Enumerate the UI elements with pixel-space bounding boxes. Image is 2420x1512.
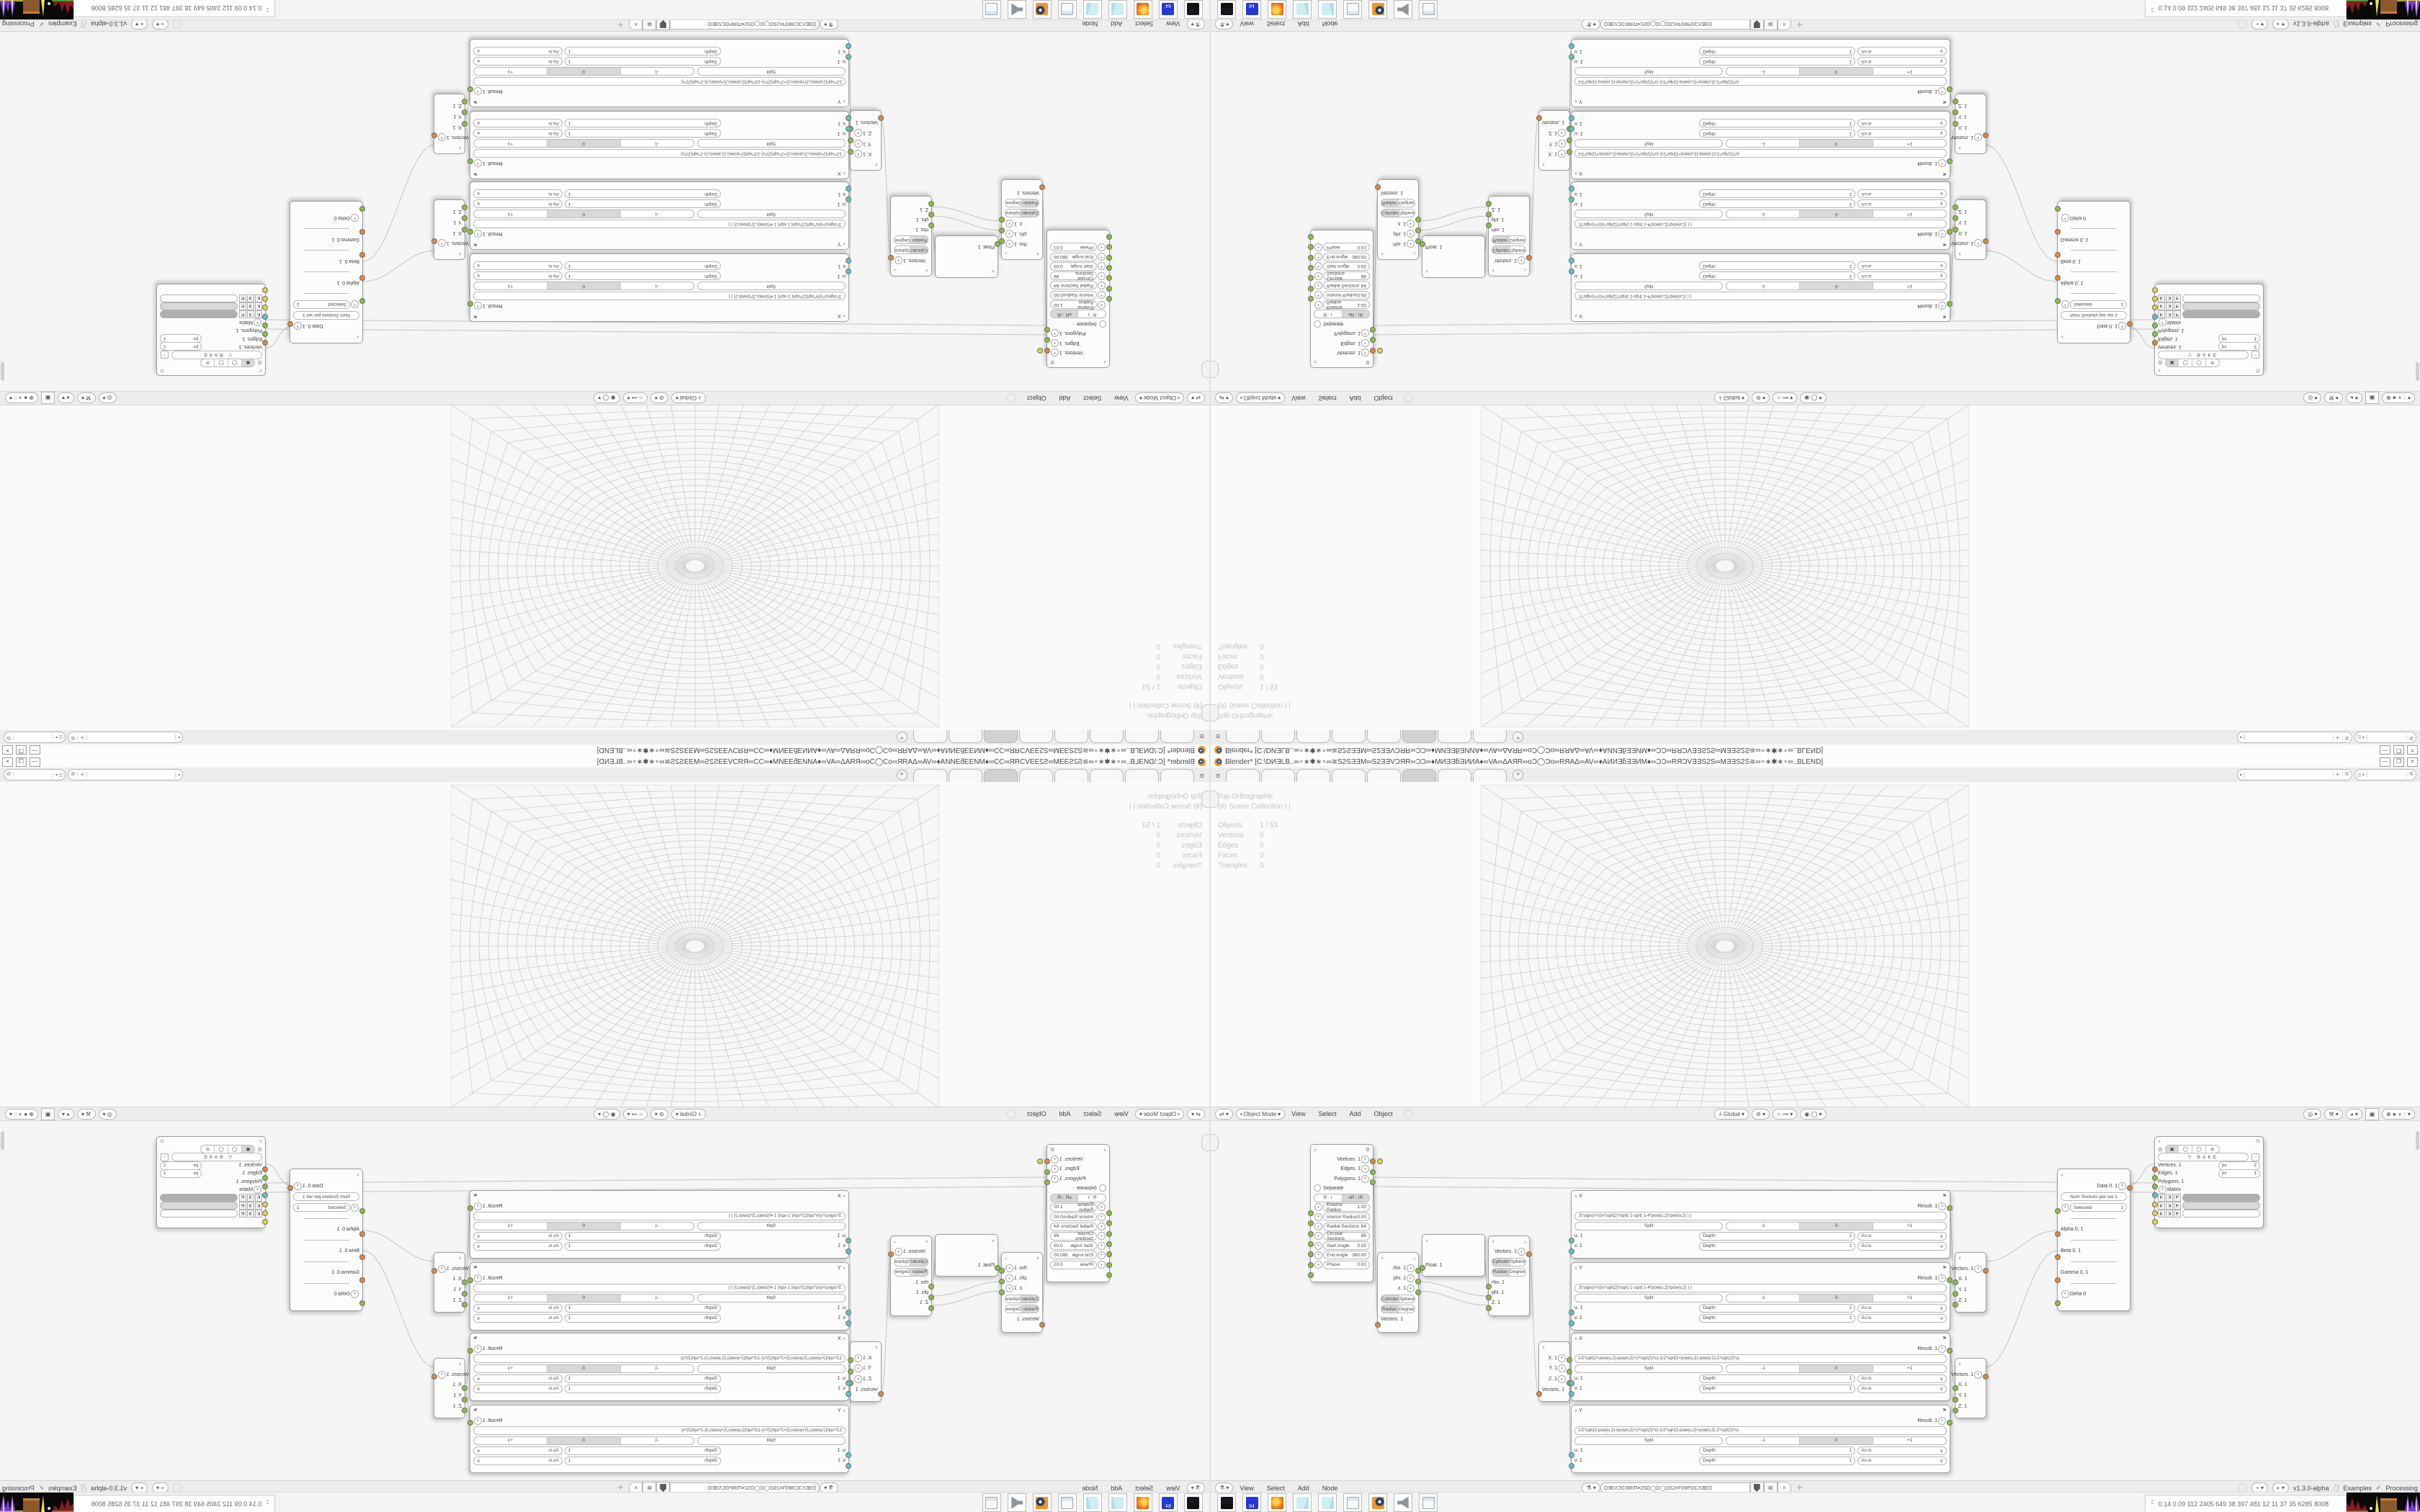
pivot-dropdown[interactable]: ⊘ ▾ [650, 1109, 668, 1120]
viewlayer-name-field[interactable] [2367, 770, 2406, 779]
segment-Sphere[interactable]: Sphere [1510, 246, 1525, 253]
cyan-socket[interactable] [1569, 1463, 1574, 1469]
green-socket[interactable] [1953, 1302, 1958, 1308]
gizmo-toggle[interactable]: ◎ ▾ [2303, 1109, 2321, 1120]
cyan-socket[interactable] [1569, 1320, 1574, 1326]
segment-Radian[interactable]: Radian [911, 1269, 928, 1276]
3d-viewport[interactable]: Top Orthographic (8) Scene Collection | … [1211, 392, 2420, 730]
gizmo-toggle[interactable]: ◎ ▾ [99, 393, 117, 404]
green-socket[interactable] [999, 1290, 1005, 1295]
tree-name-field[interactable]: OƎEΛƆCЯRIΠ¤2SO◯O◯OS2¤ΠIЯPOCΛƎEO [670, 19, 820, 30]
green-socket[interactable] [1947, 158, 1953, 164]
scene-selector[interactable]: ▾ ✛ ⧉ [68, 769, 183, 780]
green-socket[interactable] [2055, 1300, 2061, 1306]
green-socket[interactable] [1420, 1265, 1425, 1271]
segment-Cylinder[interactable]: Cylinder [1492, 1259, 1510, 1266]
green-socket[interactable] [1106, 286, 1112, 292]
node-menu-view[interactable]: View [1240, 21, 1253, 28]
node-formula-x1[interactable]: ∨X⚑Result. 1▾.5*sign(u^v)/v*sqrt(2)*sqrt… [470, 253, 849, 322]
node-list-join[interactable]: ∨Data 0. 1▾Num Sockets per set 1▾Selecte… [2057, 201, 2130, 343]
orange-socket[interactable] [2127, 321, 2133, 327]
title-bar[interactable]: Blender* [C:\DИƎLB..∞∘∗✱∗∘∞≅S2SƎƎM∞S2ƎƎV… [1211, 744, 2420, 756]
orange-socket[interactable] [359, 252, 365, 258]
workspace-tab-7[interactable] [949, 769, 982, 782]
node-viewer-draw[interactable]: ∨⊙⊙▣◯◯⊘▽ BAKE⌂Vertices. 1px2Edges. 1px1P… [156, 1136, 266, 1228]
viewlayer-selector[interactable]: ◫ ▾ ⧉ [4, 769, 66, 780]
taskbar-icon-notepad[interactable] [1318, 1493, 1337, 1512]
taskbar-icon-app-window[interactable] [1058, 1493, 1077, 1512]
copy-scene-icon[interactable]: ⧉ [68, 772, 78, 778]
menu-hamburger-icon[interactable]: ≡ [1216, 772, 1220, 780]
green-socket[interactable] [1308, 1210, 1314, 1216]
processing-check-icon[interactable]: ✓ [2376, 1484, 2382, 1492]
cyan-socket[interactable] [1569, 1238, 1574, 1243]
snap-dropdown[interactable]: ∩ ⊶ ▾ [623, 1109, 647, 1120]
maximize-button[interactable]: ❐ [16, 757, 27, 767]
taskbar-icon-drive[interactable] [1217, 1493, 1236, 1512]
node-formula-x2[interactable]: ∨X⚑Result. 1▾1/2*sqrt(2+pow(u,2)-pow(v,2… [470, 111, 849, 179]
close-button[interactable]: × [2, 746, 13, 755]
workspace-tab-6[interactable] [984, 730, 1018, 743]
cyan-socket[interactable] [846, 1380, 851, 1386]
workspace-tab-7[interactable] [1438, 730, 1471, 743]
cyan-socket[interactable] [1569, 186, 1574, 192]
render-preview-button[interactable]: ▣ [2365, 392, 2379, 405]
green-socket[interactable] [1947, 86, 1953, 92]
workspace-tab-2[interactable] [1125, 730, 1159, 743]
node-vector-in-1[interactable]: ∨Vectors. 1▾X. 1Y. 1Z. 1 [434, 199, 465, 260]
green-socket[interactable] [462, 204, 467, 210]
green-socket[interactable] [848, 138, 853, 143]
taskbar-icon-notepad[interactable] [1083, 1493, 1102, 1512]
scene-icon[interactable]: ▾ [175, 773, 182, 778]
taskbar-icon-drive[interactable] [1184, 1493, 1203, 1512]
green-socket[interactable] [1308, 255, 1314, 261]
close-button[interactable]: × [2, 757, 13, 767]
3d-viewport[interactable]: Top Orthographic (8) Scene Collection | … [0, 392, 1209, 730]
taskbar-icon-app-window[interactable] [982, 1493, 1001, 1512]
taskbar-icon-notepad[interactable] [1108, 0, 1127, 19]
green-socket[interactable] [467, 229, 473, 235]
node-polar-in[interactable]: ∨⟓Vectors. 1▾CylinderSphereRadianDegreer… [890, 196, 932, 276]
menu-hamburger-icon[interactable]: ≡ [1216, 732, 1220, 740]
orange-socket[interactable] [1375, 1322, 1381, 1328]
processing-toggle[interactable]: Processing [2385, 1485, 2418, 1492]
tree-browse-button[interactable]: ⚗ ▾ [1582, 19, 1600, 30]
pivot-dropdown[interactable]: ⊘ ▾ [1752, 393, 1770, 404]
viewport-menu-select[interactable]: Select [1083, 395, 1101, 402]
orange-socket[interactable] [431, 132, 437, 138]
green-socket[interactable] [2152, 331, 2158, 337]
cyan-socket[interactable] [846, 1463, 851, 1469]
cyan-socket[interactable] [1569, 197, 1574, 202]
maximize-button[interactable]: ❐ [2393, 746, 2404, 755]
shading-mode-pills[interactable]: ⊕ ● ◑ ◌ ▾ [5, 1109, 38, 1120]
copy-viewlayer-icon[interactable]: ⧉ [2406, 734, 2416, 740]
scene-name-field[interactable] [87, 733, 175, 742]
workspace-tab-5[interactable] [1019, 730, 1053, 743]
orange-socket[interactable] [359, 1277, 365, 1283]
segment-Sphere[interactable]: Sphere [1005, 1295, 1021, 1302]
node-menu-node[interactable]: Node [1083, 1485, 1098, 1492]
taskbar-icon-blender[interactable] [1033, 0, 1052, 19]
cyan-socket[interactable] [1569, 1248, 1574, 1254]
node-vector-in-2[interactable]: ∨Vectors. 1▾X. 1Y. 1Z. 1 [434, 94, 465, 154]
green-socket[interactable] [1486, 201, 1492, 207]
viewlayer-selector[interactable]: ◫ ▾ ⧉ [2354, 732, 2416, 743]
node-menu-node[interactable]: Node [1322, 1485, 1338, 1492]
taskbar-icon-notepad[interactable] [1293, 0, 1312, 19]
green-socket[interactable] [1308, 234, 1314, 240]
orange-socket[interactable] [2055, 229, 2061, 235]
green-socket[interactable] [1953, 109, 1958, 115]
node-editor-type-button[interactable]: ⚗ ▾ [1215, 19, 1233, 30]
segment-Sphere[interactable]: Sphere [1399, 1295, 1415, 1302]
node-list-join[interactable]: ∨Data 0. 1▾Num Sockets per set 1▾Selecte… [290, 201, 363, 343]
orange-socket[interactable] [287, 1185, 293, 1191]
viewlayer-icon[interactable]: ◫ ▾ [53, 735, 65, 740]
snap-dropdown[interactable]: ∩ ⊶ ▾ [1773, 393, 1797, 404]
taskbar-icon-firefox[interactable] [1268, 1493, 1286, 1512]
viewport-menu-object[interactable]: Object [1374, 1110, 1393, 1117]
green-socket[interactable] [1370, 1169, 1376, 1175]
workspace-tab-6[interactable] [984, 769, 1018, 782]
pin-scene-icon[interactable]: ✛ [2333, 734, 2342, 740]
taskbar-icon-app-window[interactable] [1419, 1493, 1438, 1512]
scene-icon[interactable]: ▾ [2238, 735, 2245, 740]
green-socket[interactable] [462, 99, 467, 104]
bake-button[interactable]: ▽ BAKE [2158, 1153, 2249, 1161]
workspace-tab-8[interactable] [1473, 730, 1507, 743]
node-formula-x1[interactable]: ∨X⚑Result. 1▾.5*sign(u^v)/v*sqrt(2)*sqrt… [470, 1190, 849, 1259]
toolbar-collapse-tab[interactable] [1201, 791, 1209, 808]
green-socket[interactable] [1953, 1291, 1958, 1297]
node-vector-out[interactable]: ∨X. 1▾Y. 1▾Z. 1▾Vectors. 1 [850, 1341, 882, 1402]
taskbar-icon-notepad[interactable] [1293, 1493, 1312, 1512]
workspace-tab-4[interactable] [1054, 730, 1088, 743]
examples-menu[interactable]: Examples [2343, 21, 2372, 28]
taskbar-icon-notepad[interactable] [1318, 0, 1337, 19]
proportional-edit-dropdown[interactable]: ◉ ◯ ▾ [593, 1109, 619, 1120]
node-menu-add[interactable]: Add [1111, 21, 1122, 28]
orange-socket[interactable] [359, 275, 365, 281]
node-menu-view[interactable]: View [1240, 1485, 1253, 1492]
partial-update-dropdown[interactable]: ◐ ▾ [131, 19, 148, 30]
green-socket[interactable] [2055, 206, 2061, 212]
green-socket[interactable] [1953, 204, 1958, 210]
green-socket[interactable] [1308, 1272, 1314, 1278]
segment-Degree[interactable]: Degree [1399, 1305, 1415, 1313]
active-tool-indicator[interactable] [1007, 394, 1016, 403]
green-socket[interactable] [848, 1369, 853, 1374]
segment-eR : iR[interactable]: eR : iR [1051, 310, 1078, 318]
taskbar-icon-firefox[interactable] [1268, 0, 1286, 19]
green-socket[interactable] [2152, 1184, 2158, 1189]
workspace-tab-3[interactable] [1090, 730, 1124, 743]
orange-socket[interactable] [1375, 184, 1381, 190]
3d-viewport[interactable]: Top Orthographic (8) Scene Collection | … [1211, 782, 2420, 1120]
node-polar-in[interactable]: ∨⟓Vectors. 1▾CylinderSphereRadianDegreer… [1488, 196, 1530, 276]
active-tool-indicator[interactable] [1404, 1110, 1413, 1119]
green-socket[interactable] [2152, 1175, 2158, 1181]
node-menu-add[interactable]: Add [1111, 1485, 1122, 1492]
cyan-socket[interactable] [846, 1320, 851, 1326]
orientation-dropdown[interactable]: ⟂ Global ▾ [671, 393, 706, 404]
workspace-tab-3[interactable] [1296, 730, 1330, 743]
proportional-edit-dropdown[interactable]: ◉ ◯ ▾ [1800, 1109, 1826, 1120]
node-polar-out[interactable]: ∨⟓rho. 1▾phi. 1▾z. 1▾CylinderSphereRadia… [1001, 179, 1043, 260]
workspace-tab-5[interactable] [1019, 769, 1053, 782]
overlays-toggle[interactable]: ⚒ ▾ [2324, 393, 2342, 404]
green-socket[interactable] [1106, 1262, 1112, 1268]
title-bar[interactable]: Blender* [C:\DИƎLB..∞∘∗✱∗∘∞≅S2SƎƎM∞S2ƎƎV… [0, 756, 1209, 768]
node-vector-in-1[interactable]: ∨Vectors. 1▾X. 1Y. 1Z. 1 [1955, 1252, 1986, 1313]
processing-check-icon[interactable]: ✓ [39, 1484, 45, 1492]
segment-Degree[interactable]: Degree [895, 236, 911, 243]
pin-icon[interactable]: ✛ [618, 20, 624, 28]
green-socket[interactable] [1415, 1279, 1421, 1284]
segment-Radian[interactable]: Radian [1381, 199, 1399, 207]
minimize-button[interactable]: — [30, 746, 40, 755]
taskbar-icon-speaker[interactable] [1394, 0, 1412, 19]
copy-viewlayer-icon[interactable]: ⧉ [4, 772, 14, 778]
green-socket[interactable] [1044, 327, 1050, 333]
cyan-socket[interactable] [1569, 115, 1574, 121]
workspace-tab-2[interactable] [1261, 769, 1295, 782]
green-socket[interactable] [1106, 296, 1112, 302]
green-socket[interactable] [467, 158, 473, 164]
green-socket[interactable] [1953, 1408, 1958, 1413]
segment-Degree[interactable]: Degree [1005, 1305, 1022, 1313]
node-menu-node[interactable]: Node [1322, 21, 1338, 28]
orientation-dropdown[interactable]: ⟂ Global ▾ [1714, 1109, 1749, 1120]
segment-Radian[interactable]: Radian [911, 236, 928, 243]
green-socket[interactable] [1486, 222, 1492, 228]
orange-socket[interactable] [2055, 1254, 2061, 1260]
add-workspace-button[interactable]: + [897, 770, 907, 780]
orange-socket[interactable] [1536, 115, 1542, 121]
green-socket[interactable] [1370, 1179, 1376, 1185]
render-preview-button[interactable]: ▣ [2365, 1108, 2379, 1120]
shading-mode-pills[interactable]: ⊕ ● ◑ ◌ ▾ [5, 393, 38, 404]
workspace-tab-7[interactable] [1438, 769, 1471, 782]
maximize-button[interactable]: ❐ [16, 746, 27, 755]
taskbar-icon-blender[interactable] [1368, 0, 1387, 19]
node-formula-y1[interactable]: ∨Y⚑Result. 1▾.5*sign(u^v)/u*sqrt(2)*sqrt… [1571, 1262, 1950, 1331]
green-socket[interactable] [848, 149, 853, 155]
processing-toggle[interactable]: Processing [2, 21, 35, 28]
workspace-tab-4[interactable] [1332, 730, 1366, 743]
viewlayer-icon[interactable]: ◫ ▾ [2355, 735, 2367, 740]
workspace-tab-1[interactable] [1160, 730, 1194, 743]
cyan-socket[interactable] [2152, 1192, 2158, 1198]
orange-socket[interactable] [2055, 1231, 2061, 1237]
mode-dropdown[interactable]: ▪ Object Mode ▾ [1236, 393, 1285, 404]
green-socket[interactable] [1308, 1220, 1314, 1226]
segment-Cylinder[interactable]: Cylinder [1381, 1295, 1399, 1302]
orange-socket[interactable] [2127, 1185, 2133, 1191]
node-editor-type-button[interactable]: ⚗ ▾ [1187, 19, 1205, 30]
green-socket[interactable] [1486, 1295, 1492, 1300]
snap-dropdown[interactable]: ∩ ⊶ ▾ [623, 393, 647, 404]
green-socket[interactable] [1953, 99, 1958, 104]
node-torus[interactable]: ∨⚙Vertices. 1▾Edges. 1▾Polygons. 1▾Separ… [1047, 1144, 1110, 1282]
scene-icon[interactable]: ▾ [175, 735, 182, 740]
workspace-tab-8[interactable] [1473, 769, 1507, 782]
segment-eR : iR[interactable]: eR : iR [1343, 1194, 1370, 1202]
overlays-toggle[interactable]: ⚒ ▾ [2324, 1109, 2342, 1120]
menu-hamburger-icon[interactable]: ≡ [1200, 772, 1204, 780]
workspace-tab-2[interactable] [1261, 730, 1295, 743]
green-socket[interactable] [1308, 244, 1314, 250]
node-viewer-draw[interactable]: ∨⊙⊙▣◯◯⊘▽ BAKE⌂Vertices. 1px2Edges. 1px1P… [2154, 1136, 2264, 1228]
cyan-socket[interactable] [2152, 314, 2158, 320]
viewport-menu-object[interactable]: Object [1027, 1110, 1046, 1117]
node-vector-out[interactable]: ∨X. 1▾Y. 1▾Z. 1▾Vectors. 1 [1538, 1341, 1570, 1402]
green-socket[interactable] [2055, 1208, 2061, 1214]
cyan-socket[interactable] [1569, 1452, 1574, 1458]
node-vector-in-2[interactable]: ∨Vectors. 1▾X. 1Y. 1Z. 1 [1955, 94, 1986, 154]
workspace-tab-4[interactable] [1054, 769, 1088, 782]
orientation-dropdown[interactable]: ⟂ Global ▾ [1714, 393, 1749, 404]
green-socket[interactable] [1415, 217, 1421, 222]
draft-mode-dropdown[interactable]: ⌁ ▾ [152, 19, 169, 30]
green-socket[interactable] [928, 222, 934, 228]
viewport-menu-view[interactable]: View [1291, 1110, 1305, 1117]
green-socket[interactable] [462, 227, 467, 233]
node-menu-select[interactable]: Select [1135, 21, 1153, 28]
title-bar[interactable]: Blender* [C:\DИƎLB..∞∘∗✱∗∘∞≅S2SƎƎM∞S2ƎƎV… [1211, 756, 2420, 768]
segment-R : r[interactable]: R : r [1314, 310, 1343, 318]
green-socket[interactable] [1486, 212, 1492, 217]
viewlayer-icon[interactable]: ◫ ▾ [2355, 773, 2367, 778]
xray-toggle[interactable]: ◕ ▾ [58, 393, 74, 404]
scene-name-field[interactable] [2245, 770, 2333, 779]
green-socket[interactable] [1308, 296, 1314, 302]
segment-Radian[interactable]: Radian [1492, 236, 1510, 243]
chevrons-icon[interactable]: ⌃⌃ [265, 6, 270, 12]
copy-viewlayer-icon[interactable]: ⧉ [4, 734, 14, 740]
taskbar-icon-app-window[interactable] [1343, 0, 1362, 19]
green-socket[interactable] [359, 1208, 365, 1214]
sverchok-node-editor[interactable]: ∨⚙Vertices. 1▾Edges. 1▾Polygons. 1▾Separ… [0, 1120, 1209, 1481]
processing-check-icon[interactable]: ✓ [39, 20, 45, 28]
green-socket[interactable] [359, 1300, 365, 1306]
node-menu-node[interactable]: Node [1083, 21, 1098, 28]
scene-selector[interactable]: ▾ ✛ ⧉ [68, 732, 183, 743]
pivot-dropdown[interactable]: ⊘ ▾ [1752, 1109, 1770, 1120]
node-easing[interactable]: ∨Float. 1 [1422, 235, 1485, 278]
yellow-socket[interactable] [262, 1202, 268, 1207]
workspace-tab-1[interactable] [1226, 730, 1260, 743]
orange-socket[interactable] [262, 1166, 268, 1172]
minimize-button[interactable]: — [2380, 757, 2390, 767]
update-indicator[interactable] [2238, 19, 2247, 29]
minimize-button[interactable]: — [30, 757, 40, 767]
pin-scene-icon[interactable]: ✛ [78, 734, 87, 740]
taskbar-icon-speaker[interactable] [1008, 1493, 1026, 1512]
close-button[interactable]: × [2407, 757, 2418, 767]
examples-menu[interactable]: Examples [2343, 1485, 2372, 1492]
orange-socket[interactable] [1370, 348, 1376, 354]
segment-Cylinder[interactable]: Cylinder [910, 246, 928, 253]
xray-toggle[interactable]: ◕ ▾ [58, 1109, 74, 1120]
green-socket[interactable] [1953, 215, 1958, 221]
viewport-menu-object[interactable]: Object [1027, 395, 1046, 402]
cyan-socket[interactable] [1569, 269, 1574, 274]
viewport-menu-add[interactable]: Add [1350, 1110, 1361, 1117]
node-list-join[interactable]: ∨Data 0. 1▾Num Sockets per set 1▾Selecte… [2057, 1169, 2130, 1311]
add-workspace-button[interactable]: + [1512, 770, 1523, 780]
node-easing[interactable]: ∨Float. 1 [935, 1234, 998, 1277]
node-polar-out[interactable]: ∨⟓rho. 1▾phi. 1▾z. 1▾CylinderSphereRadia… [1001, 1252, 1043, 1333]
segment-Sphere[interactable]: Sphere [1399, 210, 1415, 217]
viewport-menu-add[interactable]: Add [1059, 395, 1070, 402]
viewlayer-icon[interactable]: ◫ ▾ [53, 773, 65, 778]
taskbar-icon-floppy-64[interactable]: 64 [1159, 1493, 1178, 1512]
node-menu-view[interactable]: View [1166, 1485, 1180, 1492]
viewport-menu-select[interactable]: Select [1083, 1110, 1101, 1117]
green-socket[interactable] [1308, 1231, 1314, 1237]
draft-mode-dropdown[interactable]: ⌁ ▾ [2251, 19, 2268, 30]
mode-dropdown[interactable]: ▪ Object Mode ▾ [1135, 393, 1184, 404]
overlays-toggle[interactable]: ⚒ ▾ [77, 1109, 95, 1120]
green-socket[interactable] [995, 241, 1000, 247]
examples-menu[interactable]: Examples [48, 21, 77, 28]
orange-socket[interactable] [888, 255, 894, 261]
processing-toggle[interactable]: Processing [2, 1485, 35, 1492]
segment-Radian[interactable]: Radian [1492, 1269, 1510, 1276]
green-socket[interactable] [1106, 1210, 1112, 1216]
node-menu-add[interactable]: Add [1298, 1485, 1309, 1492]
segment-Cylinder[interactable]: Cylinder [1021, 1295, 1039, 1302]
gizmo-toggle[interactable]: ◎ ▾ [2303, 393, 2321, 404]
yellow-socket[interactable] [1377, 348, 1383, 354]
workspace-tab-5[interactable] [1367, 769, 1401, 782]
taskbar-icon-app-window[interactable] [1058, 0, 1077, 19]
green-socket[interactable] [1486, 1284, 1492, 1290]
viewport-menu-view[interactable]: View [1114, 395, 1128, 402]
yellow-socket[interactable] [2152, 1219, 2158, 1225]
copy-scene-icon[interactable]: ⧉ [68, 734, 78, 740]
overlays-toggle[interactable]: ⚒ ▾ [77, 393, 95, 404]
orange-socket[interactable] [2055, 275, 2061, 281]
node-formula-y1[interactable]: ∨Y⚑Result. 1▾.5*sign(u^v)/u*sqrt(2)*sqrt… [470, 1262, 849, 1331]
workspace-tab-3[interactable] [1296, 769, 1330, 782]
node-menu-select[interactable]: Select [1267, 1485, 1285, 1492]
segment-Radian[interactable]: Radian [1381, 1305, 1399, 1313]
yellow-socket[interactable] [2152, 296, 2158, 302]
node-formula-y2[interactable]: ∨Y⚑Result. 1▾1/2*sqrt(2-pow(u,2)+pow(v,2… [470, 39, 849, 107]
viewlayer-selector[interactable]: ◫ ▾ ⧉ [4, 732, 66, 743]
node-menu-select[interactable]: Select [1135, 1485, 1153, 1492]
tree-name-field[interactable]: OƎEΛƆCЯRIΠ¤2SO◯O◯OS2¤ΠIЯPOCΛƎEO [1600, 19, 1750, 30]
node-vector-in-2[interactable]: ∨Vectors. 1▾X. 1Y. 1Z. 1 [434, 1358, 465, 1418]
bake-button[interactable]: ▽ BAKE [2158, 351, 2249, 359]
green-socket[interactable] [1953, 1385, 1958, 1391]
cyan-socket[interactable] [1569, 258, 1574, 264]
orange-socket[interactable] [1983, 132, 1989, 138]
green-socket[interactable] [1953, 227, 1958, 233]
cyan-socket[interactable] [846, 1452, 851, 1458]
proportional-edit-dropdown[interactable]: ◉ ◯ ▾ [593, 393, 619, 404]
scene-selector[interactable]: ▾ ✛ ⧉ [2237, 732, 2352, 743]
taskbar-icon-firefox[interactable] [1134, 1493, 1152, 1512]
workspace-tab-8[interactable] [913, 730, 947, 743]
cyan-socket[interactable] [846, 1238, 851, 1243]
node-torus[interactable]: ∨⚙Vertices. 1▾Edges. 1▾Polygons. 1▾Separ… [1310, 1144, 1373, 1282]
green-socket[interactable] [1486, 1305, 1492, 1311]
